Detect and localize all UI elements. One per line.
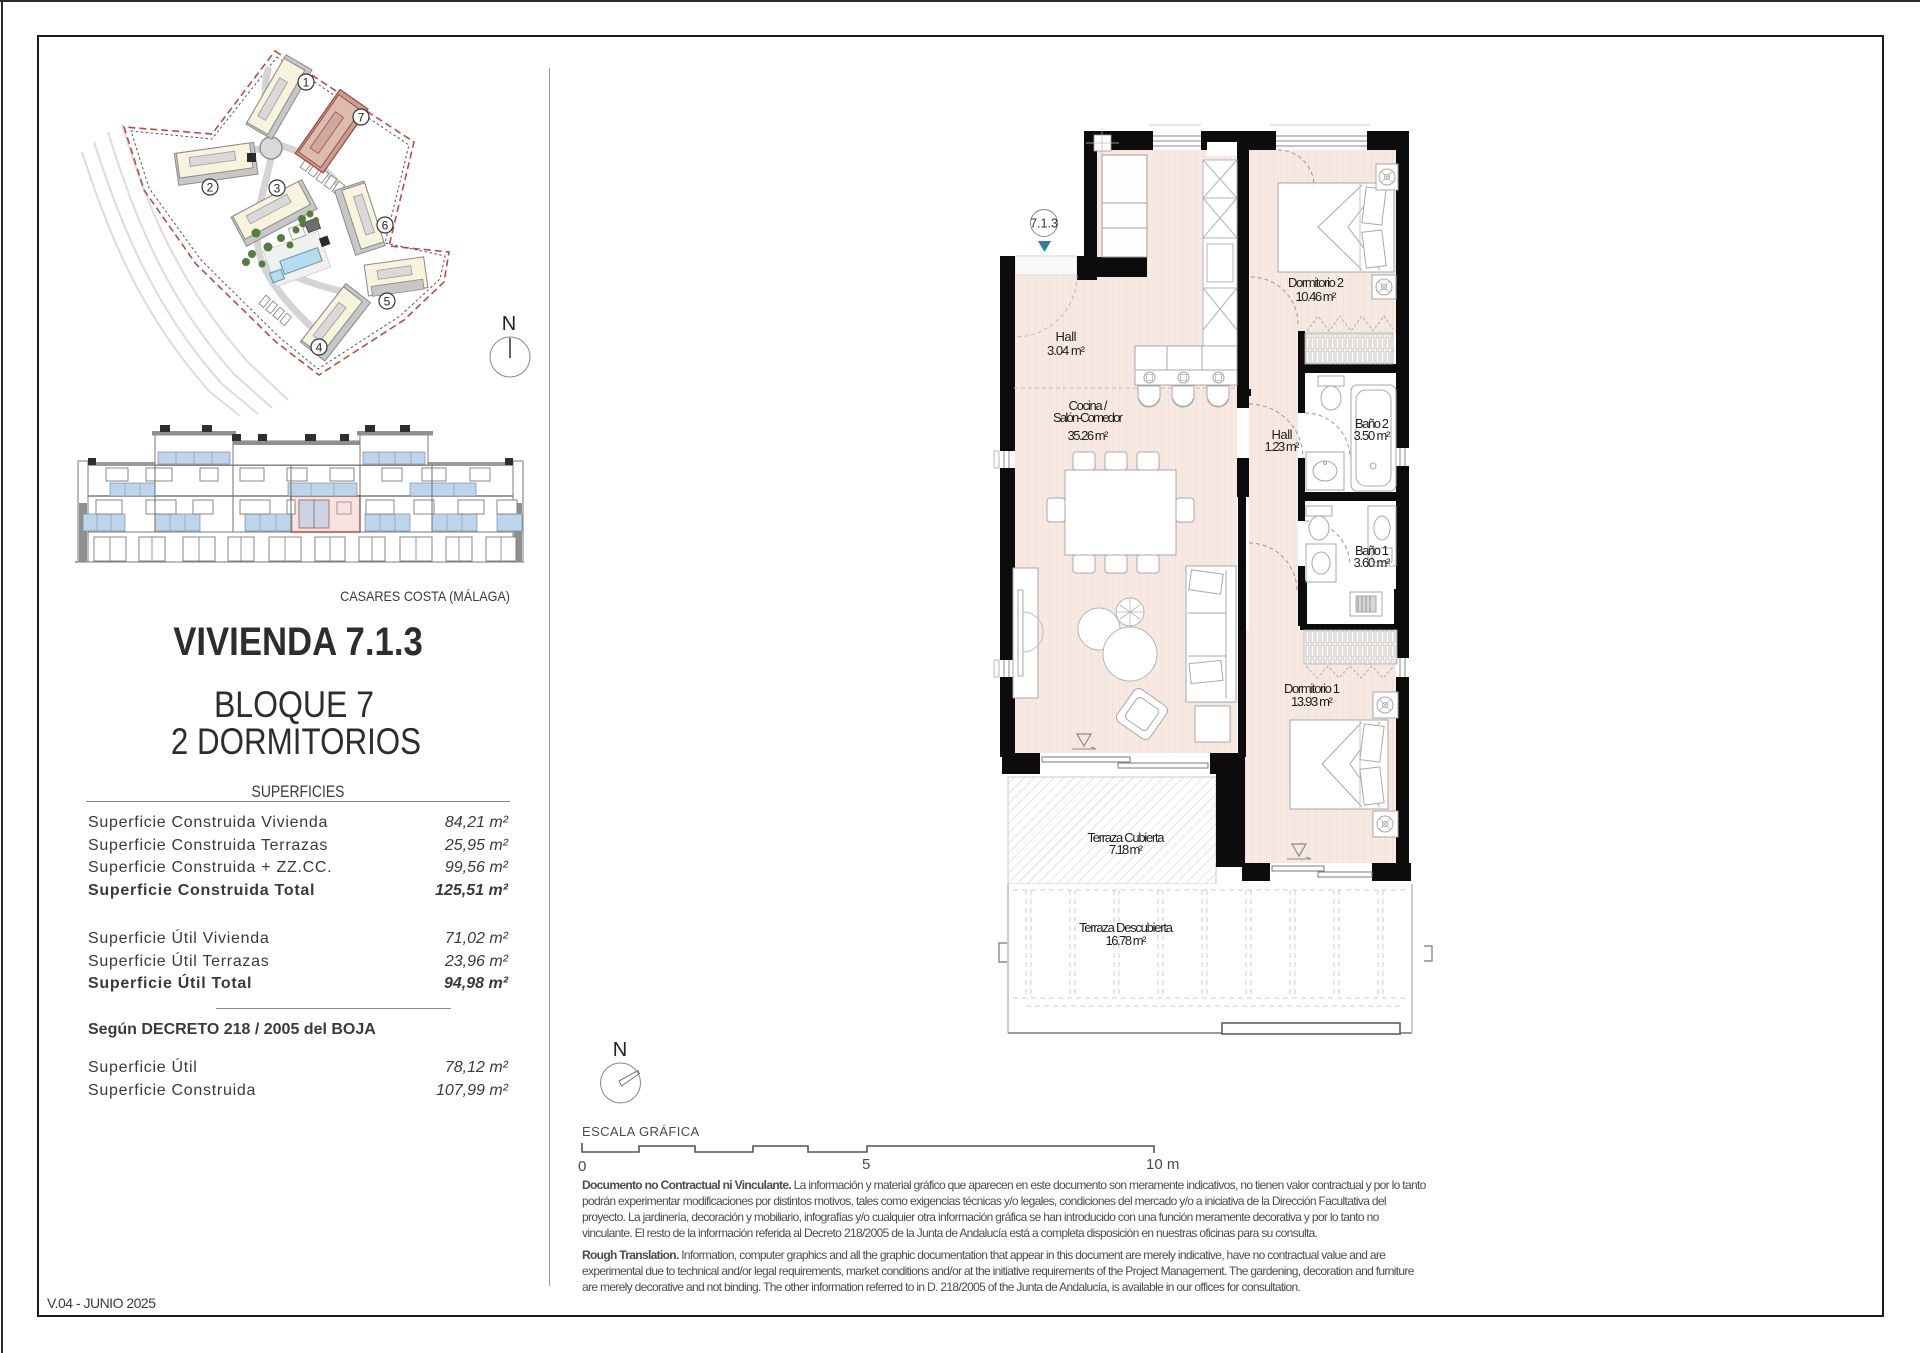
svg-text:3.50 m²: 3.50 m² (1354, 428, 1392, 443)
svg-text:Salón-Comedor: Salón-Comedor (1053, 410, 1124, 425)
svg-text:5: 5 (862, 1156, 870, 1173)
svg-text:6: 6 (382, 219, 389, 233)
svg-text:4: 4 (316, 341, 323, 355)
svg-text:10.46 m²: 10.46 m² (1296, 289, 1338, 304)
svg-text:Dormitorio 2: Dormitorio 2 (1288, 275, 1344, 290)
svg-text:10 m: 10 m (1146, 1156, 1179, 1173)
svg-text:1: 1 (303, 76, 310, 90)
svg-text:0: 0 (578, 1158, 586, 1175)
svg-text:13.93 m²: 13.93 m² (1291, 694, 1334, 709)
svg-text:N: N (613, 1039, 627, 1061)
svg-text:5: 5 (384, 295, 391, 309)
svg-text:3.60 m²: 3.60 m² (1354, 555, 1392, 570)
svg-text:7: 7 (358, 111, 365, 125)
svg-text:35.26 m²: 35.26 m² (1068, 428, 1110, 443)
svg-text:7.1.3: 7.1.3 (1030, 217, 1058, 231)
svg-text:2: 2 (207, 181, 214, 195)
svg-text:ESCALA GRÁFICA: ESCALA GRÁFICA (582, 1124, 700, 1139)
svg-text:N: N (502, 313, 516, 335)
svg-text:16.78 m²: 16.78 m² (1106, 933, 1148, 948)
svg-text:7.18 m²: 7.18 m² (1109, 842, 1144, 857)
svg-text:3.04 m²: 3.04 m² (1047, 343, 1086, 358)
svg-text:Hall: Hall (1056, 329, 1077, 344)
svg-text:1.23 m²: 1.23 m² (1265, 439, 1301, 454)
svg-text:3: 3 (274, 182, 281, 196)
